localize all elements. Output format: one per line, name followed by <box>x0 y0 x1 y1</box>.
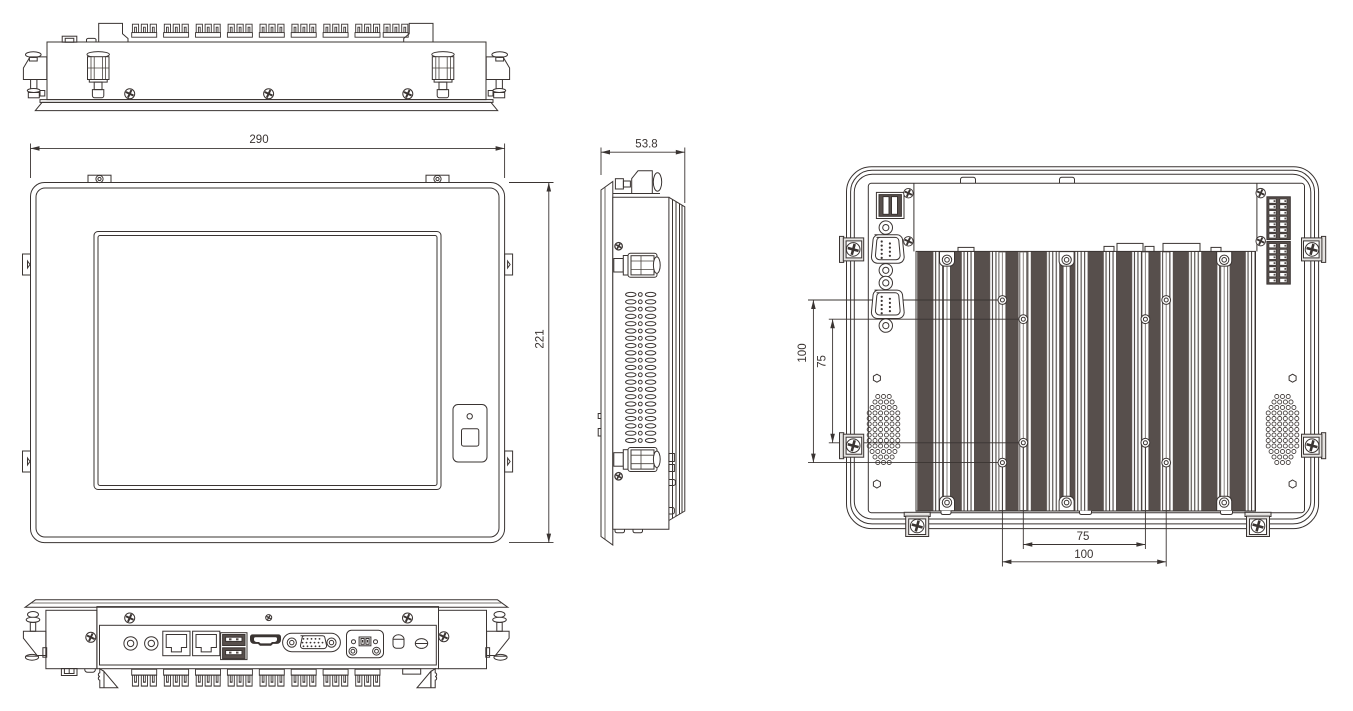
svg-text:75: 75 <box>816 355 828 368</box>
svg-text:290: 290 <box>249 134 268 146</box>
svg-text:53.8: 53.8 <box>635 139 657 151</box>
svg-text:100: 100 <box>797 343 809 362</box>
svg-text:100: 100 <box>1074 549 1093 561</box>
svg-text:75: 75 <box>1077 531 1090 543</box>
svg-text:221: 221 <box>535 329 547 348</box>
